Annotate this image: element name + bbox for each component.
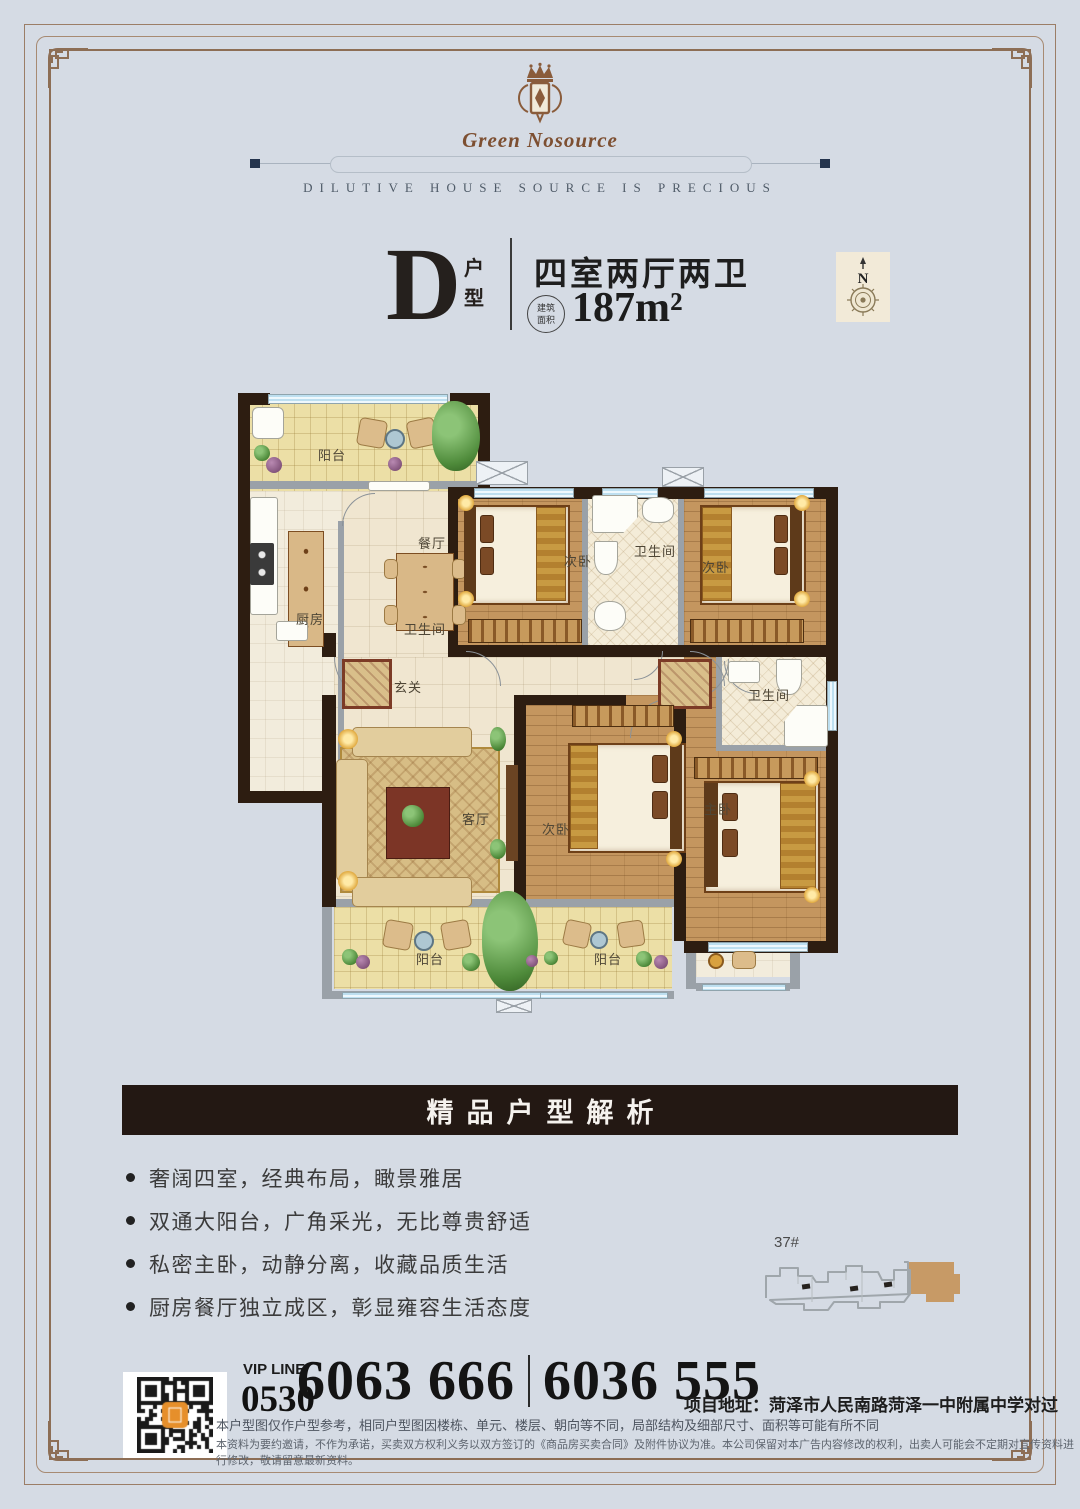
analysis-banner-title: 精品户型解析: [414, 1091, 667, 1130]
corner-ornament: [42, 42, 88, 88]
balcony-floor: [536, 907, 672, 989]
dining-chair: [452, 605, 466, 625]
title-divider: [510, 238, 512, 330]
bedside-lamp: [666, 851, 682, 867]
wall-segment: [514, 695, 626, 705]
keyplan-building: [758, 1252, 968, 1318]
vip-line-label: VIP LINE: [243, 1361, 305, 1378]
sink: [728, 661, 760, 683]
floor-lamp: [338, 729, 358, 749]
plant: [432, 401, 480, 471]
room-label: 次卧: [564, 555, 592, 568]
room-label: 玄关: [394, 681, 422, 694]
window: [702, 984, 786, 991]
analysis-bullet: 私密主卧，动静分离，收藏品质生活: [126, 1242, 766, 1285]
qr-code: [137, 1377, 213, 1453]
keyplan-core-mark: [884, 1281, 893, 1287]
plant: [490, 727, 506, 751]
project-address: 项目地址：菏泽市人民南路菏泽一中附属中学对过: [684, 1391, 1058, 1416]
plant: [636, 951, 652, 967]
bed-headboard: [704, 783, 718, 887]
wall-segment: [322, 633, 336, 657]
bullet-dot: [126, 1216, 135, 1225]
bed-headboard: [790, 505, 802, 601]
window: [342, 992, 542, 999]
brand-crest-icon: [505, 62, 575, 128]
bedside-lamp: [794, 591, 810, 607]
window: [268, 394, 448, 404]
balcony-chair: [356, 417, 388, 449]
window: [708, 942, 808, 952]
phone-separator: [528, 1355, 530, 1407]
x-window-symbol: [476, 461, 528, 485]
keyplan-core-mark: [850, 1285, 859, 1291]
wall-segment: [322, 695, 336, 907]
wall-segment: [246, 481, 480, 489]
balcony-chair: [440, 919, 472, 951]
toilet: [594, 541, 618, 575]
balcony-chair: [562, 919, 593, 950]
analysis-bullet: 双通大阳台，广角采光，无比尊贵舒适: [126, 1199, 766, 1242]
analysis-bullet: 厨房餐厅独立成区，彰显雍容生活态度: [126, 1285, 766, 1328]
bedside-lamp: [458, 591, 474, 607]
bed-headboard: [670, 743, 682, 849]
bullet-text: 私密主卧，动静分离，收藏品质生活: [149, 1249, 509, 1279]
flower-arrangement: [402, 805, 424, 827]
area-badge-line1: 建筑: [537, 302, 555, 314]
balcony-table: [385, 429, 405, 449]
room-label: 阳台: [318, 449, 346, 462]
room-label: 次卧: [542, 823, 570, 836]
pillow: [480, 515, 494, 543]
plant: [654, 955, 668, 969]
bullet-text: 奢阔四室，经典布局，瞰景雅居: [149, 1163, 464, 1193]
wall-segment: [678, 491, 684, 657]
window: [540, 992, 668, 999]
cushion: [732, 951, 756, 969]
wash-basin: [252, 407, 284, 439]
room-label: 餐厅: [418, 537, 446, 550]
disclaimer-line2: 本资料为要约邀请，不作为承诺，买卖双方权利义务以双方签订的《商品房买卖合同》及附…: [216, 1436, 1080, 1468]
sofa: [352, 727, 472, 757]
plant: [388, 457, 402, 471]
x-window-symbol: [662, 467, 704, 487]
analysis-bullet: 奢阔四室，经典布局，瞰景雅居: [126, 1156, 766, 1199]
wall-segment: [582, 491, 588, 657]
floor-lamp: [338, 871, 358, 891]
entry-rug: [342, 659, 392, 709]
plant: [266, 457, 282, 473]
keyplan-core-mark: [802, 1283, 811, 1289]
room-label: 卫生间: [634, 545, 676, 558]
area-value: 187m²: [572, 284, 683, 332]
disclaimer-line1: 本户型图仅作户型参考，相同户型图因楼栋、单元、楼层、朝向等不同，局部结构及细部尺…: [216, 1415, 879, 1434]
window: [827, 681, 837, 731]
sofa: [352, 877, 472, 907]
keyplan-building-label: 37#: [774, 1234, 799, 1251]
bullet-dot: [126, 1259, 135, 1268]
plant: [526, 955, 538, 967]
pillow: [722, 829, 738, 857]
wardrobe: [694, 757, 818, 779]
wardrobe: [468, 619, 582, 643]
bedside-lamp: [794, 495, 810, 511]
pillow: [774, 515, 788, 543]
area-badge: 建筑 面积: [527, 295, 565, 333]
plant: [544, 951, 558, 965]
blanket: [702, 507, 732, 601]
corner-ornament: [42, 1421, 88, 1467]
wall-segment: [790, 949, 800, 989]
analysis-list: 奢阔四室，经典布局，瞰景雅居双通大阳台，广角采光，无比尊贵舒适私密主卧，动静分离…: [126, 1156, 766, 1328]
bullet-text: 双通大阳台，广角采光，无比尊贵舒适: [149, 1206, 532, 1236]
unit-letter: D: [386, 233, 461, 337]
window: [474, 488, 574, 498]
pillow: [480, 547, 494, 575]
bedside-lamp: [666, 731, 682, 747]
fruit-plate: [708, 953, 724, 969]
dining-chair: [384, 605, 398, 625]
balcony-chair: [382, 919, 414, 951]
keyplan-highlight-unit: [908, 1262, 960, 1302]
room-label: 次卧: [702, 561, 730, 574]
room-label: 厨房: [296, 613, 324, 626]
phone-primary: 6063 666: [297, 1353, 515, 1409]
unit-suffix-char1: 户: [464, 254, 484, 284]
poster-page: Green Nosource DILUTIVE HOUSE SOURCE IS …: [0, 0, 1080, 1509]
room-label: 阳台: [416, 953, 444, 966]
room-label: 阳台: [594, 953, 622, 966]
area-badge-line2: 面积: [537, 314, 555, 326]
dining-chair: [384, 559, 398, 579]
large-plant: [482, 891, 538, 991]
dining-table: [396, 553, 454, 631]
plant: [462, 953, 480, 971]
bed-headboard: [464, 505, 476, 601]
sliding-door: [368, 481, 430, 491]
bedside-lamp: [804, 771, 820, 787]
corner-ornament: [992, 42, 1038, 88]
divider-end-square: [250, 159, 260, 168]
hall-rug: [658, 659, 712, 709]
room-label: 卫生间: [404, 623, 446, 636]
balcony-table: [414, 931, 434, 951]
bedside-lamp: [458, 495, 474, 511]
blanket: [570, 745, 598, 849]
wall-segment: [522, 899, 686, 907]
balcony-table: [590, 931, 608, 949]
room-label: 主卧: [704, 803, 732, 816]
bedside-lamp: [804, 887, 820, 903]
plant: [490, 839, 506, 859]
balcony-chair: [616, 919, 645, 948]
wall-segment: [238, 393, 270, 405]
bullet-dot: [126, 1173, 135, 1182]
sink: [594, 601, 626, 631]
qr-code-box: [123, 1372, 227, 1458]
divider-pill: [330, 156, 752, 173]
compass: N: [836, 252, 890, 322]
plant: [356, 955, 370, 969]
bullet-text: 厨房餐厅独立成区，彰显雍容生活态度: [149, 1292, 532, 1322]
room-label: 客厅: [462, 813, 490, 826]
stove: [250, 543, 274, 585]
blanket: [780, 783, 816, 889]
analysis-banner: 精品户型解析: [122, 1085, 958, 1135]
brand-logo-text: Green Nosource: [0, 128, 1080, 153]
room-label: 卫生间: [748, 689, 790, 702]
wall-segment: [238, 393, 250, 803]
compass-icon: N: [840, 256, 886, 318]
x-window-symbol: [496, 999, 532, 1013]
divider-end-square: [820, 159, 830, 168]
pillow: [652, 791, 668, 819]
wardrobe: [572, 705, 674, 727]
brand-tagline: DILUTIVE HOUSE SOURCE IS PRECIOUS: [0, 180, 1080, 196]
sink: [642, 497, 674, 523]
unit-letter-suffix: 户 型: [464, 254, 484, 314]
floorplan: 阳台餐厅厨房卫生间次卧卫生间次卧玄关客厅次卧主卧卫生间阳台阳台: [238, 393, 838, 1015]
pillow: [652, 755, 668, 783]
pillow: [774, 547, 788, 575]
wardrobe: [690, 619, 804, 643]
sofa: [336, 759, 368, 881]
blanket: [536, 507, 566, 601]
tv-stand: [506, 765, 518, 861]
unit-suffix-char2: 型: [464, 284, 484, 314]
wall-segment: [322, 907, 332, 997]
bullet-dot: [126, 1302, 135, 1311]
wall-segment: [686, 949, 696, 989]
